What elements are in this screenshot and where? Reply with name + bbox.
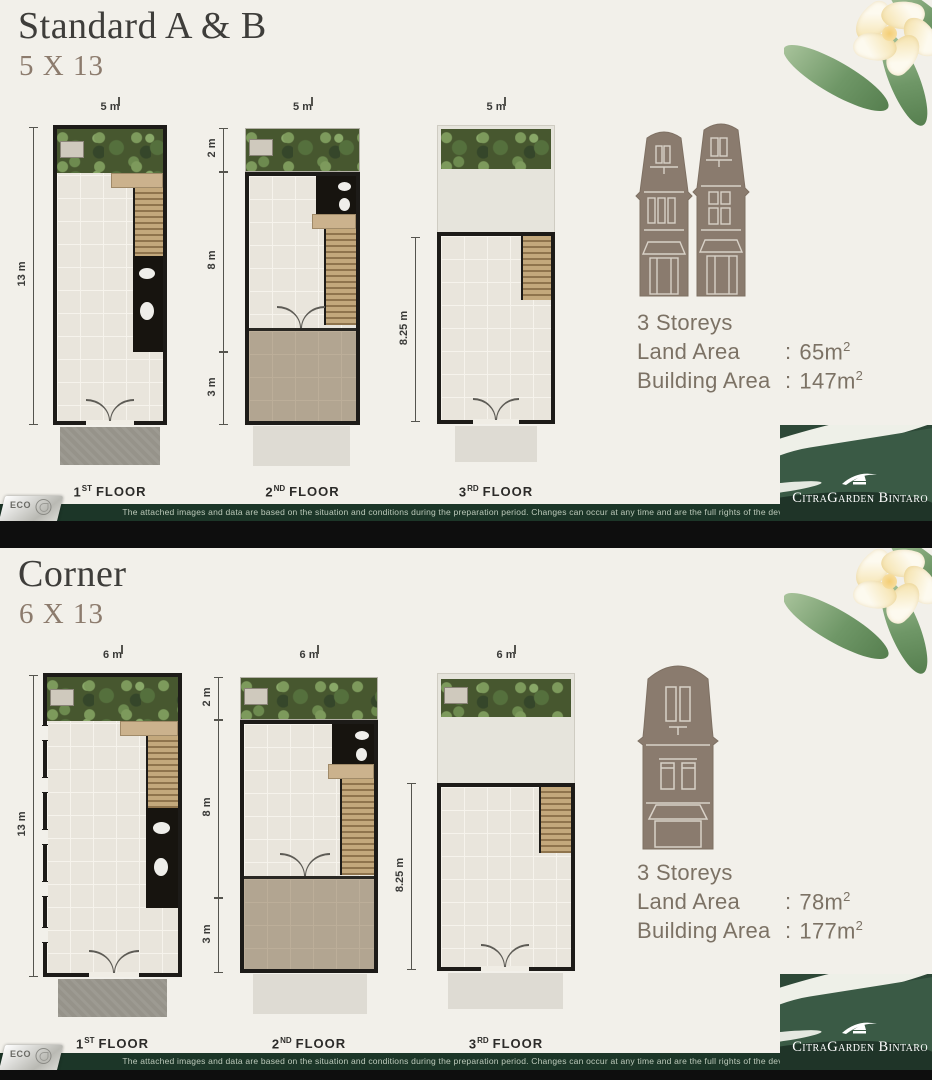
toilet-fixture xyxy=(154,858,168,876)
dimension-side-plan2-b: 8 m xyxy=(216,172,224,352)
section-size: 6 X 13 xyxy=(19,598,104,631)
leaf-icon xyxy=(784,34,896,122)
floor-label-2: 2NDFLOOR xyxy=(240,1036,378,1051)
dimension-top-plan1: 6 m xyxy=(43,649,182,661)
storeys-row: 3 Storeys xyxy=(637,310,863,339)
leaf-icon xyxy=(871,575,932,676)
dimension-side-plan2-c: 3 m xyxy=(216,352,224,425)
floor-label-2: 2NDFLOOR xyxy=(245,484,360,499)
brochure-page: { "brand": {"name": "CitraGarden Bintaro… xyxy=(0,0,932,1080)
petal-icon xyxy=(878,0,927,36)
sink-fixture xyxy=(139,268,155,279)
planter-box xyxy=(249,139,273,156)
eco-badge: ECO xyxy=(0,496,63,521)
unit-specs: 3 Storeys Land Area:78m2 Building Area:1… xyxy=(637,860,863,947)
sink-fixture xyxy=(355,731,369,740)
window-opening xyxy=(42,777,48,793)
petal-icon xyxy=(900,560,932,609)
petal-icon xyxy=(877,30,928,80)
dimension-top-plan1: 5 m xyxy=(53,101,167,113)
window-opening xyxy=(42,881,48,897)
dimension-side-plan2-b: 8 m xyxy=(211,720,219,898)
carport xyxy=(60,427,160,465)
toilet-fixture xyxy=(140,302,154,320)
staircase xyxy=(133,188,163,256)
room-door xyxy=(473,398,519,420)
lower-roof xyxy=(455,426,537,462)
petal-icon xyxy=(877,578,928,628)
eco-emblem-icon xyxy=(35,499,51,515)
flower-center-icon xyxy=(882,574,897,589)
room-door xyxy=(481,944,529,967)
toilet-fixture xyxy=(356,748,367,761)
dimension-side-plan1: 13 m xyxy=(26,675,34,977)
citragarden-logo-icon xyxy=(838,468,880,488)
garden-area xyxy=(441,129,551,169)
dimension-side-plan2-c: 3 m xyxy=(211,898,219,973)
leaf-icon xyxy=(871,27,932,128)
staircase xyxy=(521,236,551,300)
lower-roof xyxy=(253,974,367,1014)
bathroom xyxy=(332,724,374,764)
eco-badge: ECO xyxy=(0,1045,63,1070)
bathroom xyxy=(316,176,356,214)
petal-icon xyxy=(900,12,932,61)
brand-corner-decoration: CitraGarden Bintaro xyxy=(780,974,932,1070)
balcony xyxy=(244,876,374,969)
balcony-door xyxy=(280,853,330,876)
carport xyxy=(58,979,167,1017)
land-area-row: Land Area:65m2 xyxy=(637,339,863,368)
planter-box xyxy=(444,687,468,704)
land-area-row: Land Area:78m2 xyxy=(637,889,863,918)
building-area-row: Building Area:147m2 xyxy=(637,368,863,397)
sink-fixture xyxy=(153,822,170,834)
eco-label: ECO xyxy=(10,500,31,510)
dimension-side-plan1: 13 m xyxy=(26,127,34,425)
flower-center-icon xyxy=(882,26,897,41)
garden-area xyxy=(47,677,178,721)
section-size: 5 X 13 xyxy=(19,50,104,83)
petal-icon xyxy=(878,548,927,584)
garden-area xyxy=(240,677,378,720)
building-elevation-icon xyxy=(633,122,760,298)
window-opening xyxy=(42,927,48,943)
panel-standard: Standard A & B 5 X 13 5 m 5 m 5 m 13 m 2… xyxy=(0,0,932,521)
planter-box xyxy=(244,688,268,705)
stair-landing xyxy=(328,764,374,779)
frangipani-flower-decoration xyxy=(784,548,932,676)
petal-icon xyxy=(850,25,901,70)
floor-label-3: 3RDFLOOR xyxy=(437,1036,575,1051)
petal-icon xyxy=(850,573,901,618)
dimension-side-plan2-a: 2 m xyxy=(216,128,224,172)
floorplan-3rd-floor xyxy=(437,125,555,425)
bathroom xyxy=(133,256,163,352)
panel-corner: Corner 6 X 13 6 m 6 m 6 m 13 m 2 m 8 m 3… xyxy=(0,548,932,1070)
garden-area xyxy=(245,128,360,172)
petal-icon xyxy=(847,0,899,45)
balcony-door xyxy=(277,306,325,328)
sink-fixture xyxy=(338,182,351,191)
window-opening xyxy=(42,725,48,741)
floor-label-1: 1STFLOOR xyxy=(53,484,167,499)
staircase xyxy=(324,229,356,325)
section-title: Corner xyxy=(18,552,127,596)
floor-label-1: 1STFLOOR xyxy=(43,1036,182,1051)
entrance-door xyxy=(86,399,134,421)
dimension-top-plan3: 5 m xyxy=(437,101,555,113)
section-title: Standard A & B xyxy=(18,4,267,48)
brand-corner-decoration: CitraGarden Bintaro xyxy=(780,425,932,521)
planter-box xyxy=(50,689,74,706)
staircase xyxy=(146,736,178,808)
eco-emblem-icon xyxy=(35,1048,51,1064)
brand-name: CitraGarden Bintaro xyxy=(792,1039,928,1056)
unit-specs: 3 Storeys Land Area:65m2 Building Area:1… xyxy=(637,310,863,397)
dimension-top-plan2: 5 m xyxy=(245,101,360,113)
dimension-top-plan2: 6 m xyxy=(240,649,378,661)
eco-label: ECO xyxy=(10,1049,31,1059)
floorplan-3rd-floor xyxy=(437,673,575,973)
toilet-fixture xyxy=(339,198,350,211)
garden-area xyxy=(57,129,163,173)
floorplan-2nd-floor xyxy=(245,125,360,425)
staircase xyxy=(539,787,571,853)
building-area-row: Building Area:177m2 xyxy=(637,918,863,947)
floorplan-1st-floor xyxy=(43,673,182,977)
staircase xyxy=(340,779,374,875)
frangipani-flower-decoration xyxy=(784,0,932,128)
window-opening xyxy=(42,829,48,845)
leaf-icon xyxy=(882,548,932,606)
dimension-side-plan2-a: 2 m xyxy=(211,677,219,720)
dimension-side-plan3: 8.25 m xyxy=(408,237,416,422)
pantry-counter xyxy=(111,173,163,188)
brand-name: CitraGarden Bintaro xyxy=(792,490,928,507)
floorplan-2nd-floor xyxy=(240,673,378,973)
lower-roof xyxy=(448,973,563,1009)
balcony xyxy=(249,328,356,421)
entrance-door xyxy=(89,950,139,973)
dimension-side-plan3: 8.25 m xyxy=(404,783,412,970)
garden-area xyxy=(441,679,571,717)
citragarden-logo-icon xyxy=(838,1017,880,1037)
storeys-row: 3 Storeys xyxy=(637,860,863,889)
leaf-icon xyxy=(882,0,932,58)
planter-box xyxy=(60,141,84,158)
bathroom xyxy=(146,808,178,908)
building-elevation-icon xyxy=(633,661,723,851)
lower-roof xyxy=(253,426,350,466)
floorplan-1st-floor xyxy=(53,125,167,425)
pantry-counter xyxy=(120,721,178,736)
floor-label-3: 3RDFLOOR xyxy=(437,484,555,499)
dimension-top-plan3: 6 m xyxy=(437,649,575,661)
leaf-icon xyxy=(784,582,896,670)
stair-landing xyxy=(312,214,356,229)
petal-icon xyxy=(847,548,899,593)
